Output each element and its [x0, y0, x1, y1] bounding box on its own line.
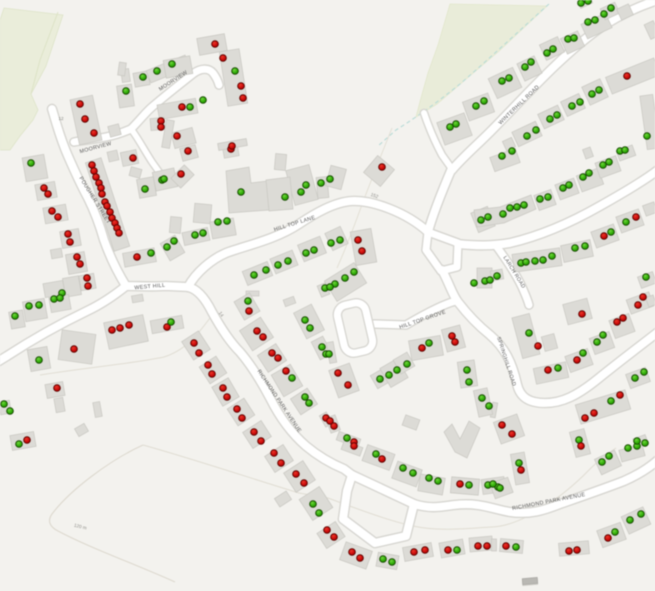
svg-text:12: 12	[58, 116, 64, 121]
